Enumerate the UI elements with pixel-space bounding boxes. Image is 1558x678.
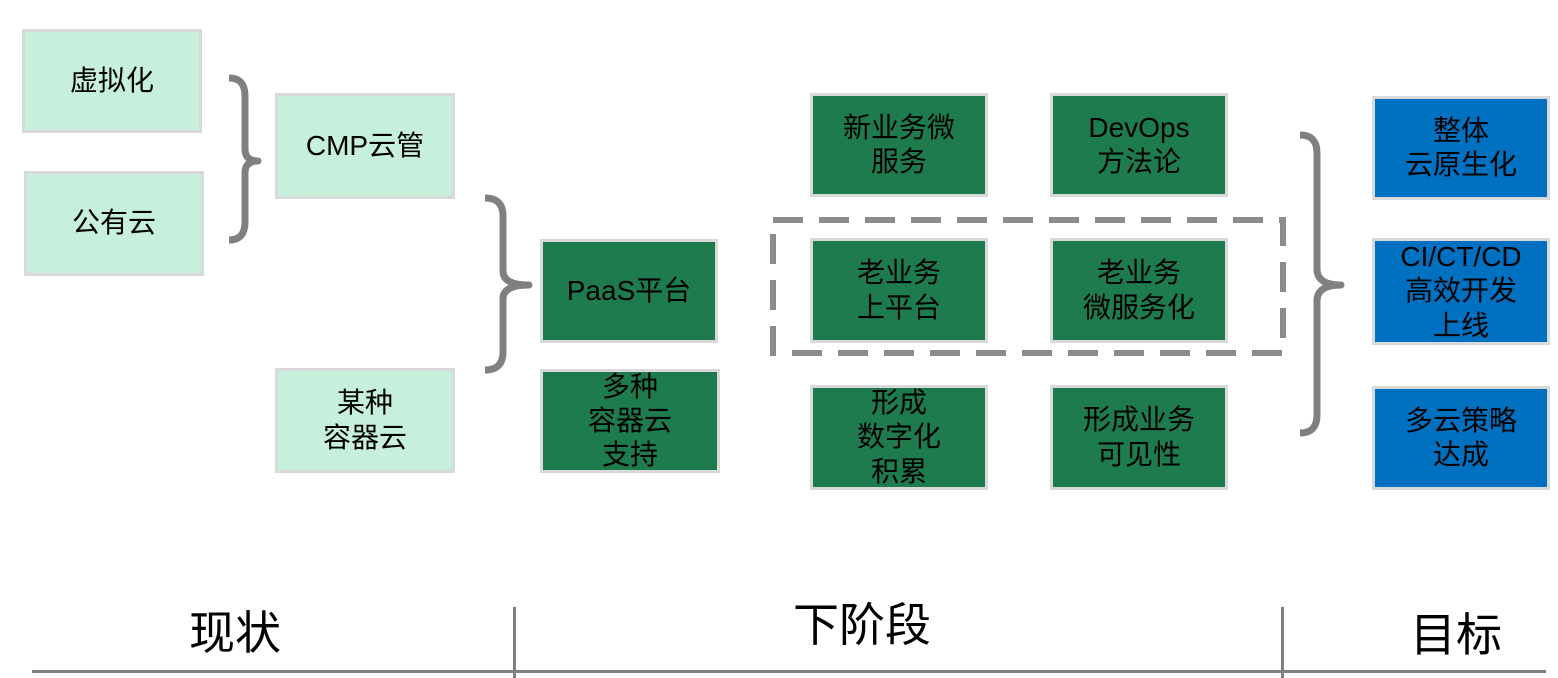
cloud-roadmap-diagram: 虚拟化 公有云 CMP云管 某种 容器云 PaaS平台 多种 容器云 支持 新业…	[0, 0, 1558, 678]
box-virtualization-label: 虚拟化	[70, 64, 154, 98]
box-overall-cloud-native-label: 整体 云原生化	[1405, 114, 1517, 182]
box-overall-cloud-native: 整体 云原生化	[1372, 96, 1550, 200]
box-paas-platform-label: PaaS平台	[567, 274, 692, 308]
box-new-biz-microservices-label: 新业务微 服务	[843, 111, 955, 179]
box-multicloud-strategy-label: 多云策略 达成	[1405, 404, 1517, 472]
brace-current-to-cmp	[229, 78, 258, 240]
brace-clouds-to-paas	[485, 198, 529, 370]
box-paas-platform: PaaS平台	[540, 239, 718, 343]
box-legacy-to-platform: 老业务 上平台	[810, 238, 988, 343]
stage-divider-current-next	[513, 607, 516, 678]
box-legacy-microservitization: 老业务 微服务化	[1050, 238, 1228, 343]
stage-divider-next-goal	[1281, 607, 1284, 678]
box-virtualization: 虚拟化	[22, 29, 202, 133]
box-multi-container-support: 多种 容器云 支持	[540, 369, 720, 473]
connector-layer	[0, 0, 1558, 678]
box-digital-accumulation: 形成 数字化 积累	[810, 385, 988, 490]
box-some-container-cloud-label: 某种 容器云	[323, 386, 407, 454]
box-new-biz-microservices: 新业务微 服务	[810, 93, 988, 197]
box-business-visibility: 形成业务 可见性	[1050, 385, 1228, 490]
stage-label-current: 现状	[125, 597, 345, 663]
box-public-cloud-label: 公有云	[72, 206, 156, 240]
box-legacy-microservitization-label: 老业务 微服务化	[1083, 256, 1195, 324]
box-some-container-cloud: 某种 容器云	[275, 368, 455, 473]
box-devops-methodology: DevOps 方法论	[1050, 93, 1228, 197]
brace-next-to-goal	[1300, 135, 1341, 433]
box-ci-ct-cd-delivery: CI/CT/CD 高效开发 上线	[1372, 238, 1550, 345]
box-digital-accumulation-label: 形成 数字化 积累	[857, 386, 941, 488]
stage-label-next: 下阶段	[752, 589, 972, 655]
box-ci-ct-cd-delivery-label: CI/CT/CD 高效开发 上线	[1400, 240, 1521, 342]
stage-label-goal: 目标	[1346, 599, 1558, 665]
box-legacy-to-platform-label: 老业务 上平台	[857, 256, 941, 324]
box-multicloud-strategy: 多云策略 达成	[1372, 386, 1550, 490]
box-devops-methodology-label: DevOps 方法论	[1088, 111, 1189, 179]
box-cmp-cloud-mgmt-label: CMP云管	[306, 129, 424, 163]
box-public-cloud: 公有云	[24, 171, 204, 276]
box-business-visibility-label: 形成业务 可见性	[1083, 403, 1195, 471]
box-multi-container-support-label: 多种 容器云 支持	[588, 370, 672, 472]
box-cmp-cloud-mgmt: CMP云管	[275, 93, 455, 199]
stage-axis-baseline	[32, 670, 1546, 673]
